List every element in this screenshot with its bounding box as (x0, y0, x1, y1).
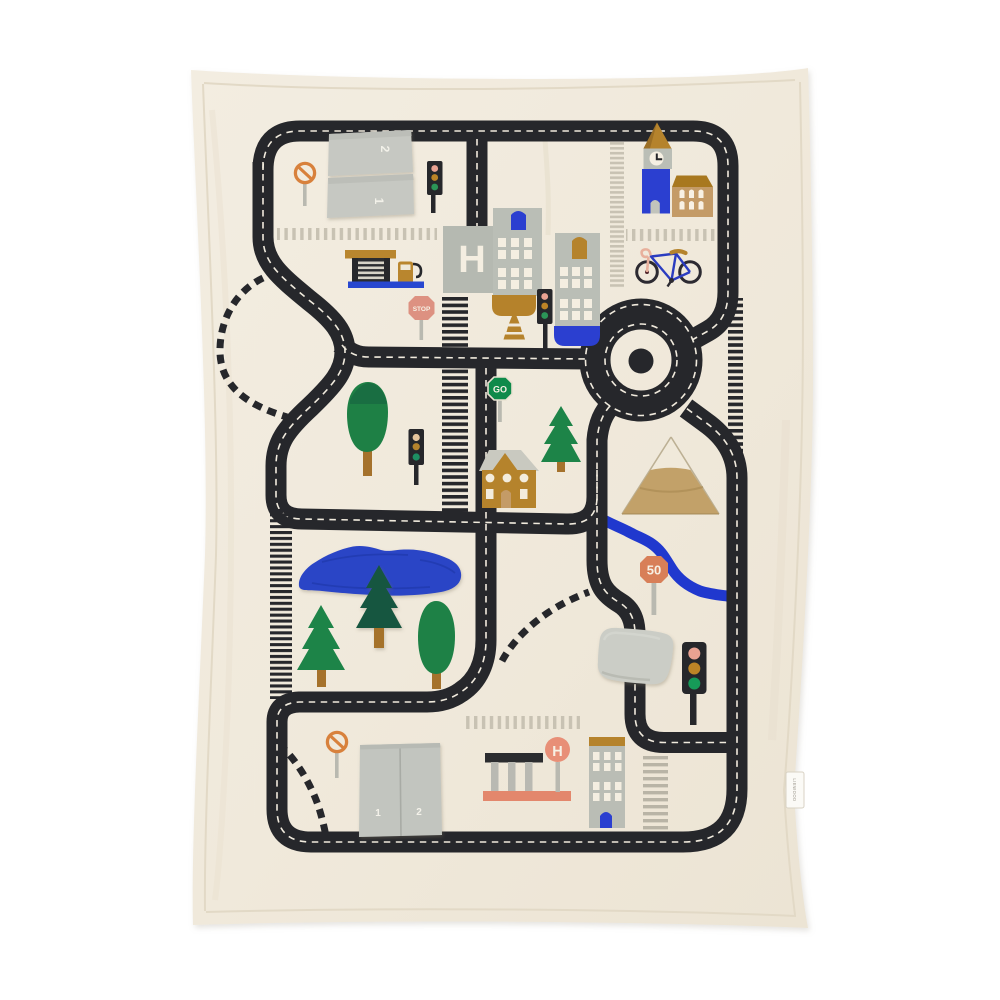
svg-text:50: 50 (647, 563, 661, 578)
svg-text:H: H (552, 744, 562, 760)
svg-text:STOP: STOP (413, 306, 431, 313)
svg-text:1: 1 (375, 808, 381, 819)
svg-text:2: 2 (378, 146, 392, 153)
svg-text:LIEWOOD: LIEWOOD (792, 778, 797, 801)
svg-text:H: H (458, 239, 485, 281)
svg-text:2: 2 (416, 807, 422, 818)
svg-text:1: 1 (372, 198, 386, 205)
svg-text:GO: GO (493, 385, 507, 395)
